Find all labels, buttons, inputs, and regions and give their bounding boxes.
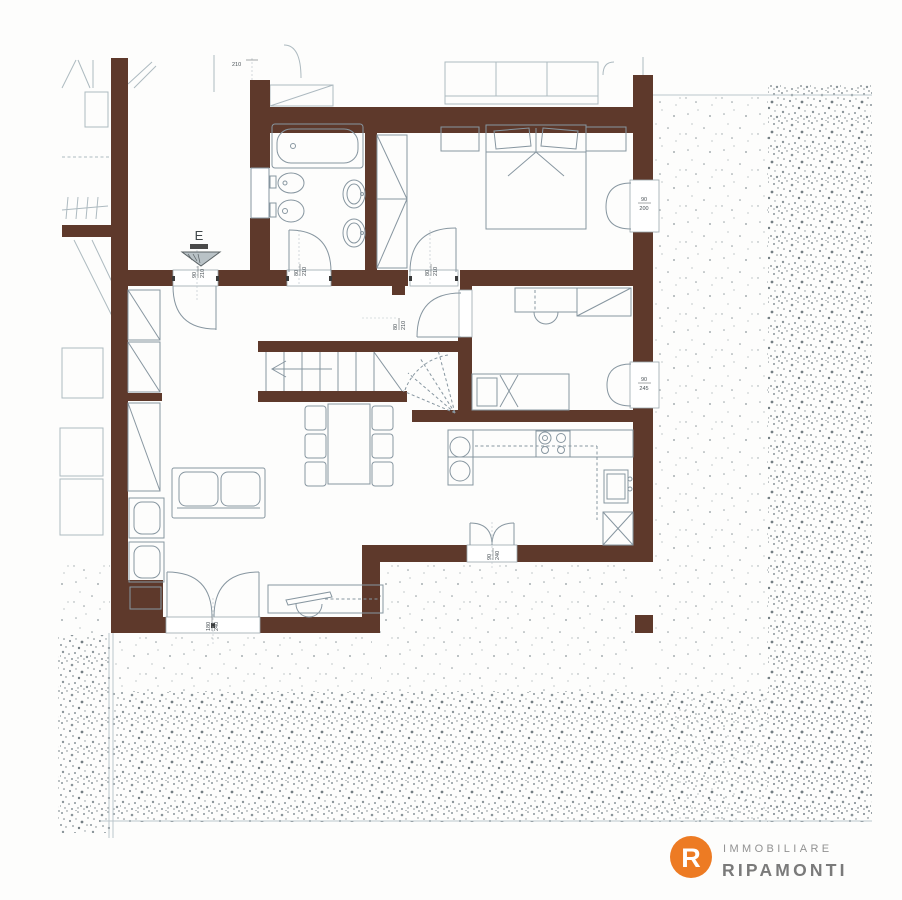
wall-segment: [111, 617, 166, 633]
washbasin: [343, 180, 365, 208]
single-bed: [472, 374, 569, 410]
window-dim-width: 90: [641, 377, 647, 383]
window-dim-width: 90: [641, 197, 647, 203]
built-in-wardrobe: [377, 135, 407, 268]
neighbor-closet: [270, 85, 333, 106]
floor-plan-scan: 210: [0, 0, 902, 900]
door-dim-height: 240: [495, 551, 501, 560]
door-dim-height: 210: [401, 321, 407, 330]
wall-segment: [111, 580, 163, 617]
wall-segment: [362, 545, 380, 633]
window-dim-height: 200: [639, 206, 648, 212]
neighbor-door-arc: [284, 45, 301, 78]
stair-treads: [266, 352, 402, 391]
wall-segment: [125, 393, 162, 401]
door-dim-height: 210: [200, 269, 206, 278]
chair: [372, 406, 393, 430]
wall-segment: [111, 286, 128, 580]
patio-right-sparse: [653, 97, 768, 822]
wall-segment: [111, 270, 175, 286]
wall-segment: [517, 545, 633, 562]
bedroom-2: [472, 288, 631, 410]
dining-table: [328, 404, 370, 484]
wall-segment: [392, 286, 405, 295]
agency-logo: R IMMOBILIARE RIPAMONTI: [670, 836, 848, 880]
logo-line1: IMMOBILIARE: [723, 843, 833, 855]
entrance-letter: E: [195, 228, 204, 243]
tv: [286, 592, 332, 605]
wall-segment: [330, 270, 408, 286]
stair-winders: [403, 350, 455, 413]
sink-bowl: [450, 437, 470, 457]
door-dim-width: 80: [294, 270, 300, 276]
wall-segment: [218, 270, 287, 286]
double-bed: [486, 125, 586, 229]
bedroom2-door: 80 210: [362, 290, 472, 337]
chair: [305, 434, 326, 458]
toilet: [270, 200, 304, 222]
chair: [372, 434, 393, 458]
bedroom2-window: 90 245: [607, 362, 659, 408]
neighbor-sofa: [445, 62, 598, 104]
garden-left-sparse: [58, 565, 110, 635]
bidet: [270, 173, 304, 193]
wall-segment: [633, 232, 653, 362]
logo-line2: RIPAMONTI: [722, 860, 848, 880]
window-dim-height: 245: [639, 386, 648, 392]
door-dim-width: 80: [393, 324, 399, 330]
entrance-arrow-icon: [182, 252, 220, 266]
entrance-marker: E: [182, 228, 220, 266]
wall-segment: [380, 545, 467, 562]
kitchen-sink-unit: [604, 470, 632, 503]
neighbor-furniture: [85, 92, 108, 127]
desk: [515, 288, 577, 324]
chair: [305, 462, 326, 486]
wall-segment: [460, 286, 472, 290]
floor-plan-page: 210: [0, 0, 902, 900]
chair: [305, 406, 326, 430]
wall-segment: [633, 75, 653, 180]
door-dim-width: 90: [487, 554, 493, 560]
garden-left-column: [58, 635, 110, 833]
patio-south-sparse: [380, 562, 633, 692]
logo-monogram: R: [681, 843, 701, 873]
neighbor-radiator: [62, 197, 108, 219]
wall-segment: [365, 133, 377, 270]
wall-segment: [458, 337, 472, 412]
wardrobe: [577, 288, 631, 316]
sink-bowl: [450, 461, 470, 481]
armchair: [129, 498, 164, 538]
door-label-bedroom2: 80 210: [393, 318, 407, 330]
chair: [372, 462, 393, 486]
kitchen-door: 90 240: [467, 522, 517, 568]
patio-southwest-sparse: [113, 633, 372, 692]
garden-stipple: [58, 85, 872, 833]
neighbor-furniture: [60, 428, 103, 476]
washbasin: [343, 219, 365, 247]
bedroom-1: [441, 125, 626, 229]
neighbor-furniture: [60, 479, 103, 535]
wall-segment: [250, 218, 270, 270]
door-dim-width: 80: [425, 270, 431, 276]
wall-segment: [412, 410, 637, 422]
entrance-arrow-bar: [190, 244, 208, 249]
bedroom1-window: 90 200: [606, 180, 659, 232]
armchair: [129, 542, 164, 582]
wall-segment: [460, 270, 637, 286]
stove: [536, 431, 570, 457]
wall-segment: [633, 408, 653, 562]
plumbing-niche: [251, 168, 269, 218]
wall-segment: [258, 341, 458, 352]
neighbor-furniture: [62, 348, 103, 398]
door-dim-height: 210: [302, 267, 308, 276]
garden-pillar: [635, 615, 653, 633]
door-dim-width: 90: [192, 272, 198, 278]
closet-run: [128, 290, 160, 491]
door-dim-height: 210: [433, 267, 439, 276]
wall-segment: [62, 225, 111, 237]
door-dim-height: 240: [214, 622, 220, 631]
sofa: [172, 468, 265, 518]
wall-segment: [250, 80, 270, 168]
door-dim-width: 180: [206, 622, 212, 631]
bathroom-door: 80 210: [286, 230, 332, 286]
fridge: [603, 512, 633, 545]
bedroom1-door: 80 210: [409, 228, 458, 286]
top-dimension-label: 210: [232, 62, 241, 68]
living-room: [128, 290, 383, 617]
wall-segment: [111, 58, 128, 270]
wall-segment: [258, 391, 407, 402]
kitchen: [448, 430, 633, 545]
neighbor-door-arc: [603, 62, 614, 75]
dining-area: [305, 404, 393, 486]
